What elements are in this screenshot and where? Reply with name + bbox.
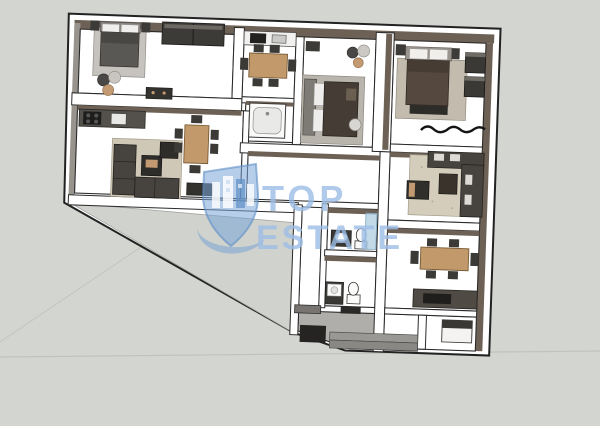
floor-plan-canvas: TOP ESTATE (0, 0, 600, 426)
foot-bench (410, 105, 448, 115)
pouf (347, 47, 358, 58)
pillow (314, 83, 325, 105)
logo-building (212, 182, 220, 208)
chair (270, 45, 280, 53)
toilet-tank (347, 295, 360, 304)
doorway (341, 306, 361, 314)
nightstand (90, 20, 99, 30)
wardrobe-top (465, 77, 485, 82)
bed-blanket-fold (407, 60, 449, 73)
living-right (406, 151, 484, 218)
pillow (121, 25, 138, 34)
stove (83, 111, 101, 125)
wall (417, 315, 426, 349)
chair (191, 115, 202, 123)
logo-window (226, 180, 230, 184)
chair (174, 142, 182, 152)
bed-blanket-fold (346, 88, 356, 100)
chair (410, 251, 418, 264)
sofa-pillow (450, 154, 460, 161)
side-stool (349, 119, 361, 131)
chair (268, 79, 278, 87)
watermark-line2: ESTATE (256, 219, 403, 257)
coffee-table-tray (145, 159, 157, 167)
chair (189, 165, 200, 173)
wardrobe-top (466, 53, 486, 58)
pouf (97, 74, 109, 86)
chair (449, 239, 459, 247)
watermark-line1: TOP (262, 178, 347, 219)
bathtub-basin (253, 107, 282, 134)
corner-sofa-bottom-arm (134, 177, 179, 199)
chair (426, 270, 436, 278)
logo-window (226, 188, 230, 192)
chair (211, 130, 219, 140)
pillow (429, 49, 447, 60)
bathroom-middle-top (249, 103, 286, 138)
wall-shelf (306, 41, 320, 51)
stove (250, 33, 266, 44)
floor-plan-image: TOP ESTATE (0, 0, 600, 426)
corner-cabinet-top (442, 320, 472, 329)
chair (427, 238, 437, 246)
chair (448, 271, 458, 279)
entrance-wall-face (295, 305, 321, 314)
sofa-pillow (434, 154, 444, 161)
tv-unit-drawer (409, 183, 415, 197)
pouf (353, 58, 363, 68)
sink (111, 113, 126, 125)
pouf (108, 71, 120, 83)
chair (175, 128, 183, 138)
chair (288, 59, 296, 71)
counter-sink (423, 293, 451, 304)
sink-basin (331, 287, 338, 294)
bed-blanket-fold (101, 32, 139, 44)
chair (240, 58, 248, 70)
pillow (313, 109, 324, 131)
chair (470, 253, 478, 266)
pillow (409, 49, 427, 60)
chair (252, 78, 262, 86)
logo-building (236, 179, 245, 208)
dining-table (184, 125, 209, 164)
sink (272, 35, 286, 43)
pouf (357, 45, 369, 57)
pouf (102, 84, 113, 95)
dining-table (420, 247, 469, 271)
nightstand (396, 44, 406, 55)
coffee-table (439, 174, 458, 195)
sofa-pillow (464, 195, 471, 205)
toilet-bowl (348, 282, 358, 295)
nightstand (141, 22, 150, 32)
dresser (146, 87, 172, 99)
logo-window (238, 184, 242, 188)
bathroom-lower (325, 281, 361, 305)
sofa-pillow (465, 175, 472, 185)
corner-sofa-right-arm (460, 164, 484, 217)
chair (210, 144, 218, 154)
logo-building (247, 184, 254, 206)
pillow (102, 24, 119, 33)
chair (254, 44, 264, 52)
dining-table (249, 53, 288, 78)
door-mat (300, 325, 327, 343)
corner-sofa-left-arm (113, 144, 137, 195)
